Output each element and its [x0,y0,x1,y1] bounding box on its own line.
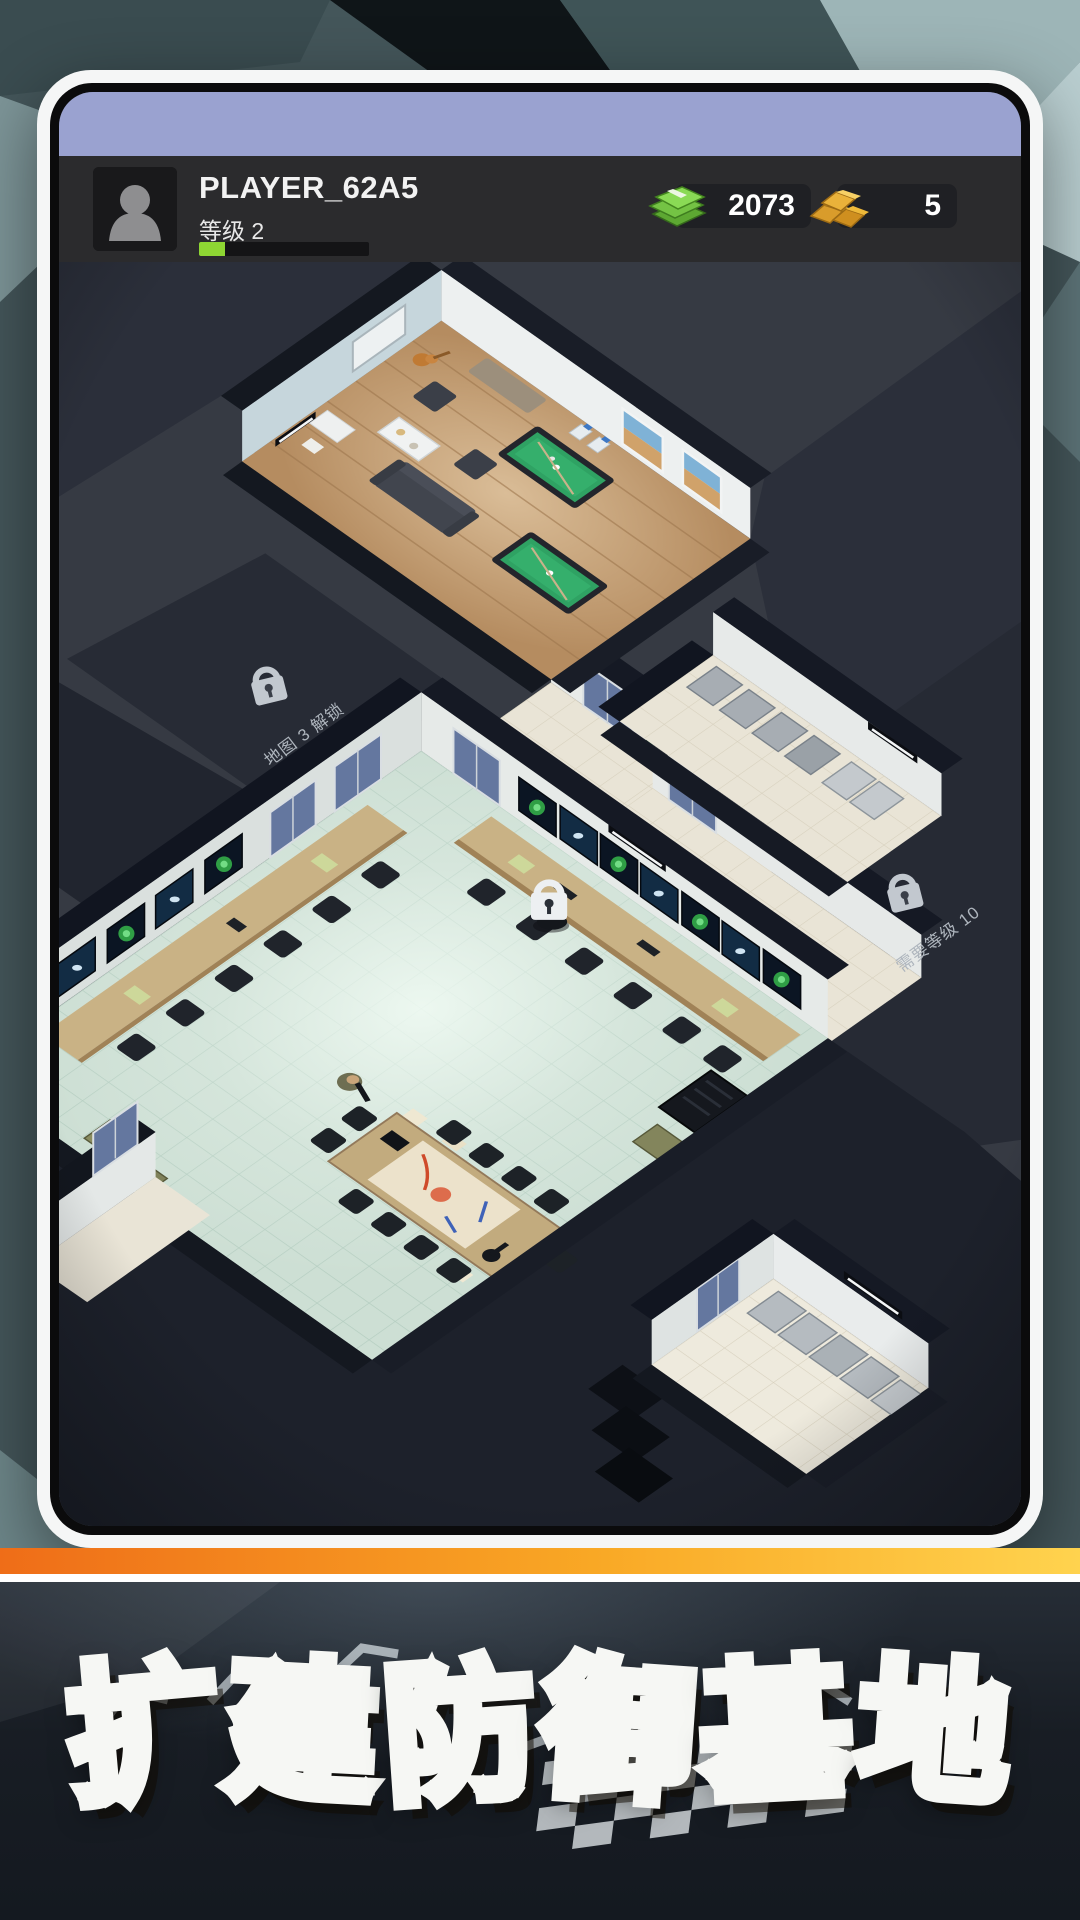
xp-fill [199,242,225,256]
status-bar [59,92,1021,156]
cash-icon [645,178,711,234]
app-root: { "player": { "name": "PLAYER_62A5", "le… [0,0,1080,1920]
gold-counter[interactable]: 5 [837,182,957,230]
player-info-bar: PLAYER_62A5 等级 2 2073 [59,156,1021,262]
phone-bezel: PLAYER_62A5 等级 2 2073 [50,83,1030,1535]
person-icon [93,167,177,251]
xp-bar [199,242,369,256]
promo-banner: 扩建防御基地 扩建防御基地 [0,1548,1080,1920]
banner-title-fill: 扩建防御基地 [0,1640,1080,1828]
vignette [59,262,1021,1526]
currency-panel: 2073 5 [675,182,957,230]
asphalt-road: 扩建防御基地 扩建防御基地 [0,1582,1080,1920]
white-strip [0,1574,1080,1582]
player-level: 等级 2 [199,212,264,246]
orange-strip [0,1548,1080,1574]
cash-counter[interactable]: 2073 [675,182,811,230]
base-map[interactable]: 地图 3 解锁 需要等级 10 [59,262,1021,1526]
base-map-scene[interactable]: 地图 3 解锁 需要等级 10 [59,262,1021,1526]
avatar[interactable] [93,167,177,251]
game-screen: PLAYER_62A5 等级 2 2073 [59,92,1021,1526]
phone-frame: PLAYER_62A5 等级 2 2073 [37,70,1043,1548]
gold-icon [807,178,869,234]
player-name: PLAYER_62A5 [199,170,419,206]
banner-title: 扩建防御基地 扩建防御基地 [0,1640,1080,1860]
